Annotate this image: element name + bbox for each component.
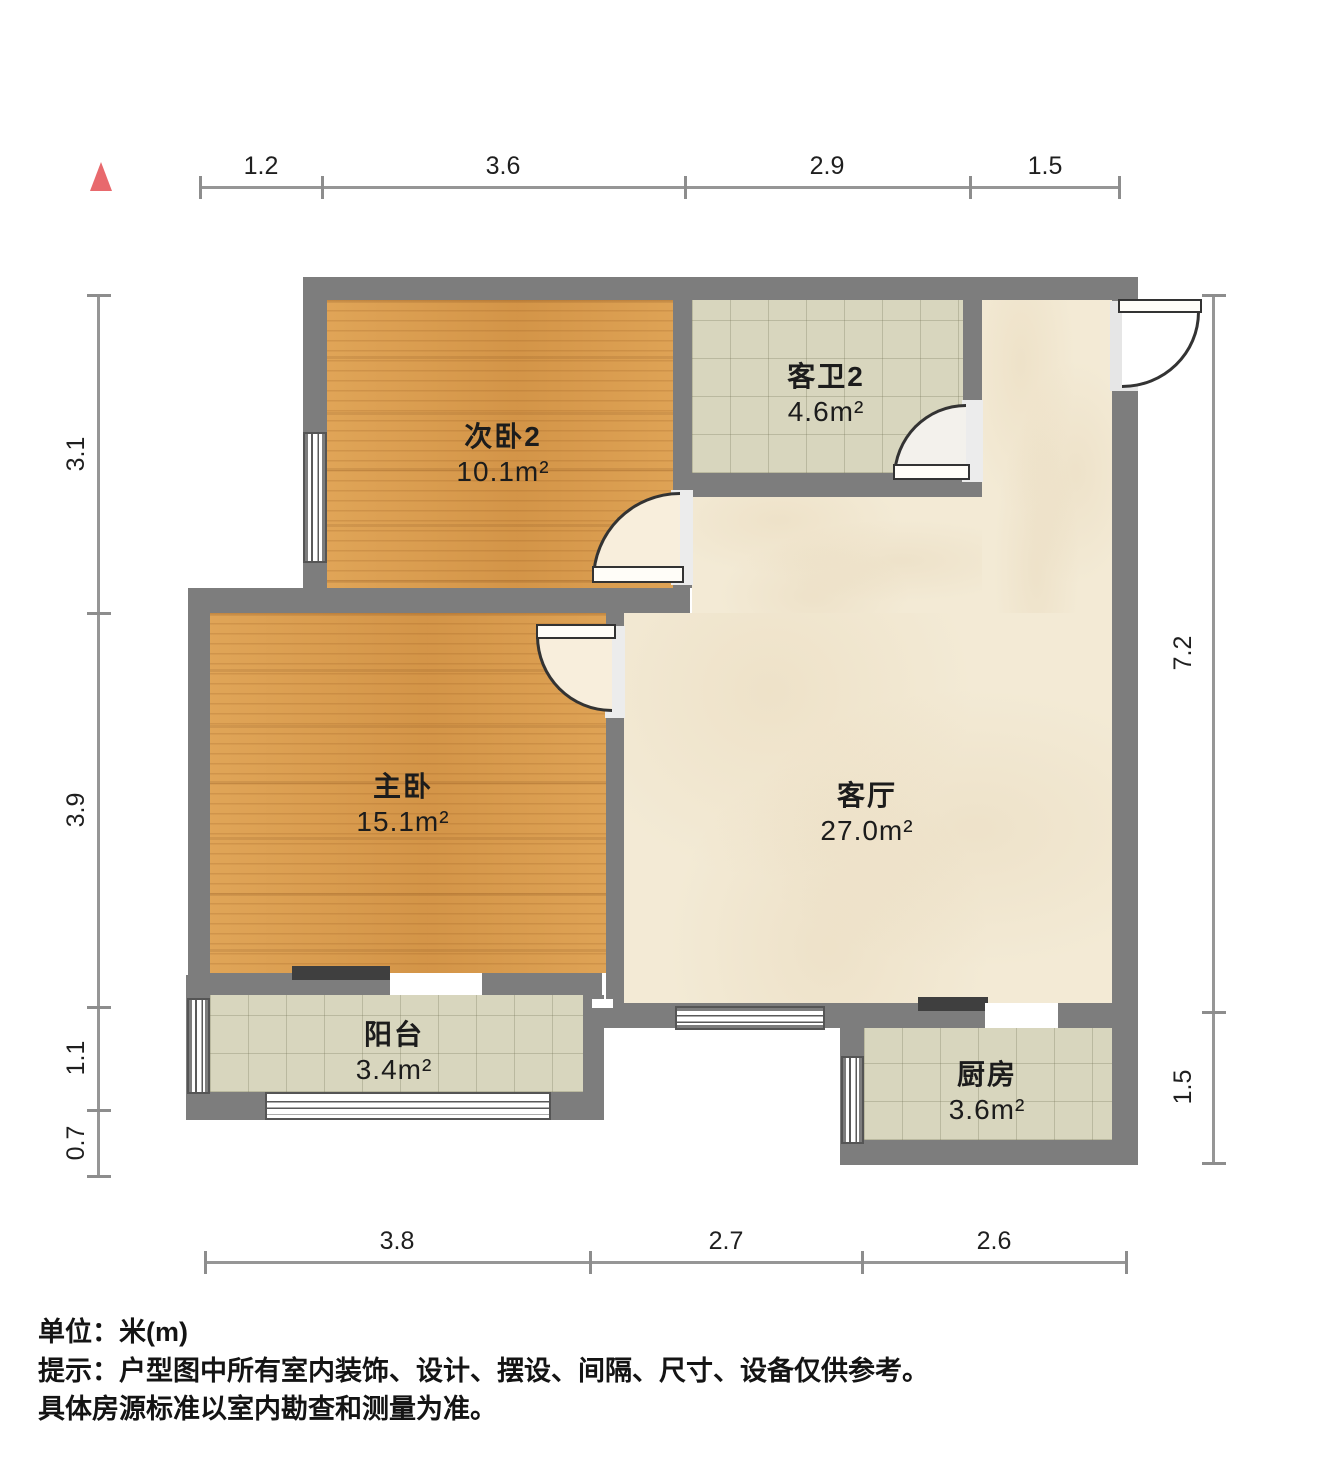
dim-label-bottom-2: 2.7 (709, 1227, 744, 1256)
dim-tick (87, 612, 111, 615)
room-label-living-room: 客厅 27.0m² (820, 779, 913, 849)
dim-tick (1202, 1162, 1226, 1165)
sliding-door-master-balcony-icon (292, 966, 390, 980)
dim-tick (589, 1251, 592, 1274)
room-label-master-bedroom: 主卧 15.1m² (356, 770, 449, 840)
footer-disclaimer-2: 具体房源标准以室内勘查和测量为准。 (38, 1387, 497, 1426)
dim-tick (1125, 1251, 1128, 1274)
dim-label-right-2: 1.5 (1167, 1047, 1199, 1127)
dim-label-top-1: 1.2 (244, 152, 279, 181)
window-kitchen-icon (841, 1056, 864, 1144)
dim-tick (861, 1251, 864, 1274)
dimension-line-top (200, 186, 1120, 189)
wall-exterior-top (303, 277, 1138, 300)
wall-kitchen-bottom (840, 1140, 1138, 1165)
room-name-master-bedroom: 主卧 (356, 770, 449, 804)
dimension-line-bottom (205, 1261, 1128, 1264)
wall-exterior-right (1112, 277, 1138, 1165)
room-name-living-room: 客厅 (820, 779, 913, 813)
dim-tick (1202, 1011, 1226, 1014)
footer-unit-note: 单位：米(m) (38, 1310, 188, 1349)
dim-tick (87, 294, 111, 297)
door-leaf-entry-icon (1118, 299, 1202, 313)
dim-tick (1118, 176, 1121, 199)
room-area-master-bedroom: 15.1m² (356, 804, 449, 840)
opening-balcony-notch (592, 999, 613, 1008)
opening-kitchen (985, 1003, 1058, 1028)
dim-label-left-4: 0.7 (60, 1103, 92, 1183)
door-leaf-second-bedroom-icon (592, 566, 684, 583)
window-balcony-left-icon (187, 998, 210, 1094)
room-area-kitchen: 3.6m² (949, 1092, 1026, 1128)
dim-label-left-2: 3.9 (60, 770, 92, 850)
dim-tick (199, 176, 202, 199)
room-area-balcony: 3.4m² (356, 1052, 433, 1088)
window-balcony-rail-icon (265, 1092, 551, 1120)
wall-balcony-corner-right (550, 1092, 604, 1120)
floor-plan-page: 次卧2 10.1m² 客卫2 4.6m² 主卧 15.1m² 客厅 27.0m²… (0, 0, 1323, 1460)
room-name-kitchen: 厨房 (949, 1058, 1026, 1092)
dim-label-top-2: 3.6 (486, 152, 521, 181)
opening-master-balcony (390, 973, 482, 995)
dim-label-right-1: 7.2 (1167, 613, 1199, 693)
floor-entry-hall (982, 300, 1112, 613)
dim-label-bottom-3: 2.6 (977, 1227, 1012, 1256)
wall-balcony-corner-left (186, 1092, 266, 1120)
dim-tick (204, 1251, 207, 1274)
dim-tick (969, 176, 972, 199)
room-label-kitchen: 厨房 3.6m² (949, 1058, 1026, 1128)
room-area-living-room: 27.0m² (820, 813, 913, 849)
dim-label-bottom-1: 3.8 (380, 1227, 415, 1256)
dimension-line-left (97, 295, 100, 1178)
dim-tick (684, 176, 687, 199)
wall-balcony-right (583, 995, 604, 1094)
dim-label-left-1: 3.1 (60, 414, 92, 494)
dim-tick (1202, 294, 1226, 297)
north-triangle-icon (90, 162, 112, 191)
window-living-room-icon (675, 1006, 825, 1030)
room-label-second-bedroom: 次卧2 10.1m² (456, 420, 549, 490)
sliding-door-kitchen-icon (918, 997, 988, 1011)
room-area-second-bedroom: 10.1m² (456, 454, 549, 490)
door-arc-entry-icon (1122, 312, 1200, 388)
room-name-second-bedroom: 次卧2 (456, 420, 549, 454)
room-name-guest-bathroom: 客卫2 (787, 360, 865, 394)
dim-tick (321, 176, 324, 199)
room-label-balcony: 阳台 3.4m² (356, 1018, 433, 1088)
footer-disclaimer-1: 提示：户型图中所有室内装饰、设计、摆设、间隔、尺寸、设备仅供参考。 (38, 1349, 929, 1388)
dim-tick (87, 1006, 111, 1009)
dimension-line-right (1212, 295, 1215, 1165)
floor-living-room-upper (692, 497, 982, 613)
door-leaf-master-bedroom-icon (536, 624, 616, 639)
wall-master-bedroom-left (188, 600, 210, 975)
room-name-balcony: 阳台 (356, 1018, 433, 1052)
room-area-guest-bathroom: 4.6m² (787, 394, 865, 430)
wall-bedroom-divider (188, 588, 690, 613)
door-leaf-bathroom-icon (893, 464, 970, 480)
room-label-guest-bathroom: 客卫2 4.6m² (787, 360, 865, 430)
dim-label-left-3: 1.1 (60, 1018, 92, 1098)
dim-label-top-3: 2.9 (810, 152, 845, 181)
window-second-bedroom-icon (303, 432, 327, 563)
dim-label-top-4: 1.5 (1028, 152, 1063, 181)
